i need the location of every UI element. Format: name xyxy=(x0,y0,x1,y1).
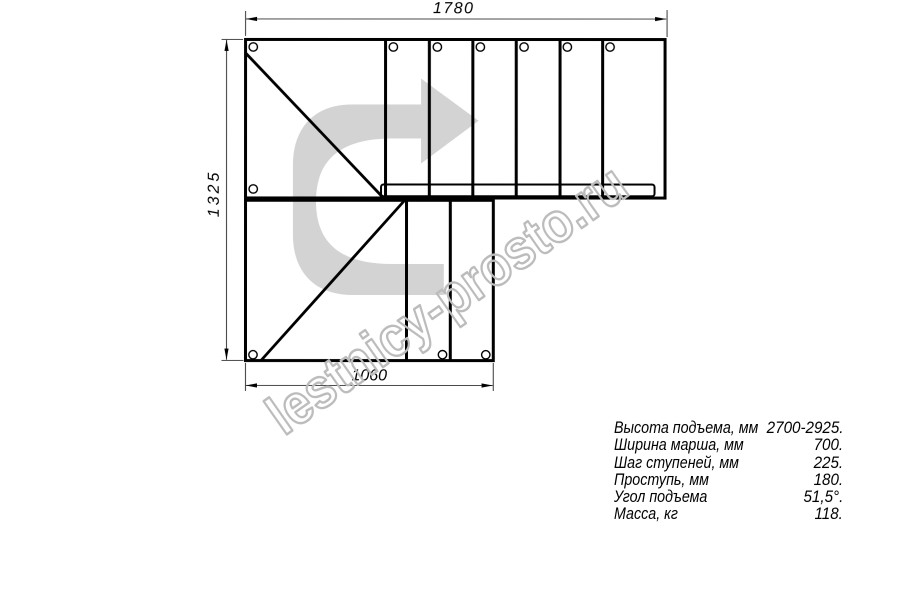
svg-text:1780: 1780 xyxy=(433,0,473,17)
svg-text:1325: 1325 xyxy=(206,173,223,218)
